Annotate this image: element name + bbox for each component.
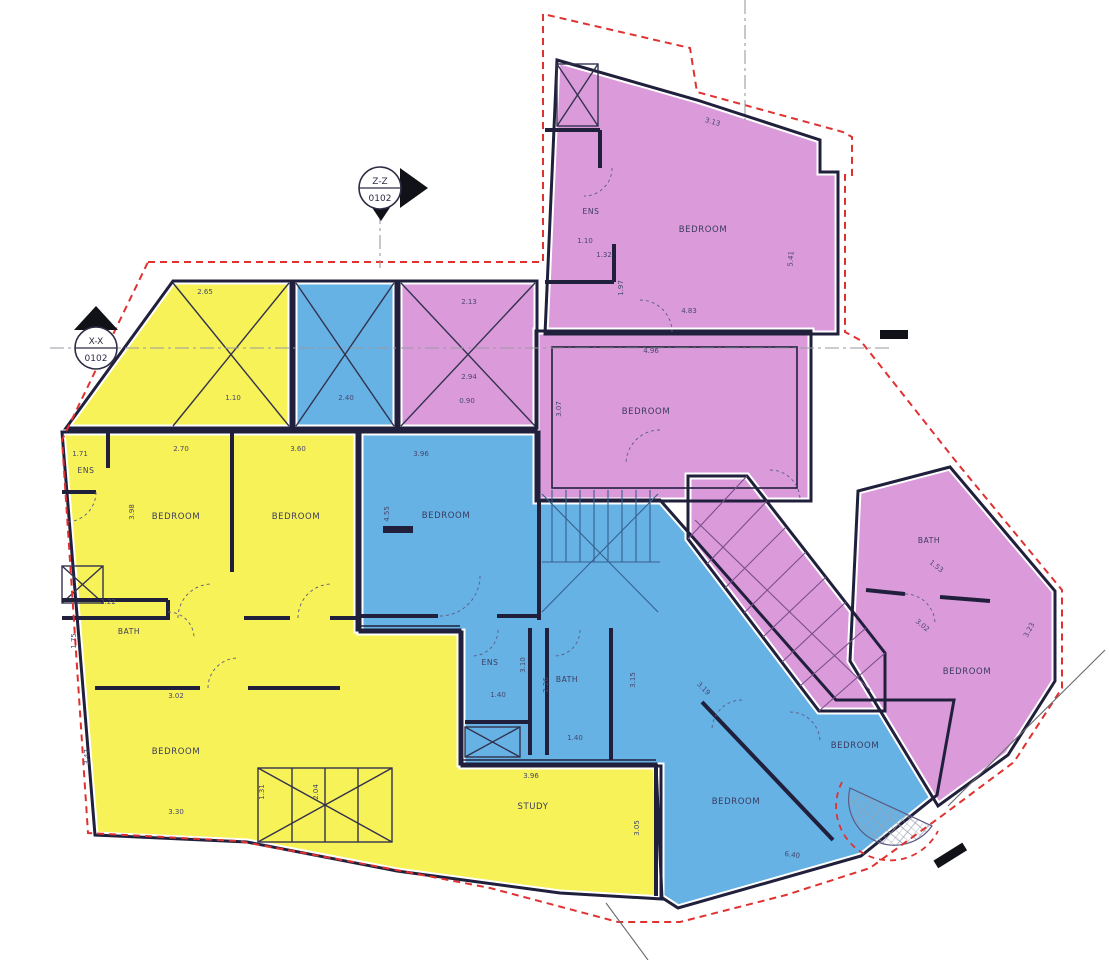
dimension-label: 3.96	[523, 772, 539, 780]
dimension-label: 2.40	[338, 394, 354, 402]
dimension-label: 3.07	[555, 401, 563, 417]
dimension-label: 2.26	[542, 677, 550, 693]
section-marker-xx: X-X 0102	[74, 306, 118, 369]
section-zz-name: Z-Z	[372, 177, 387, 187]
dimension-label: 2.22	[100, 598, 116, 606]
room-label: ENS	[583, 207, 600, 216]
floor-plan-drawing: Z-Z 0102 X-X 0102 ENSBEDROOMBEDROOMBATHB…	[0, 0, 1109, 960]
dimension-label: 1.75	[70, 633, 78, 649]
room-label: BEDROOM	[831, 741, 880, 751]
dimension-label: 1.71	[72, 450, 88, 458]
dimension-label: 3.15	[629, 672, 637, 688]
dimension-label: 3.30	[168, 808, 184, 816]
room-label: BATH	[556, 675, 578, 684]
dimension-label: 3.05	[633, 820, 641, 836]
dimension-label: 1.40	[567, 734, 583, 742]
room-label: BATH	[118, 627, 140, 636]
section-zz-sheet: 0102	[369, 194, 392, 204]
dimension-label: 3.10	[519, 657, 527, 673]
room-label: ENS	[78, 466, 95, 475]
dimension-label: 4.83	[681, 307, 697, 315]
room-label: BEDROOM	[152, 747, 201, 757]
room-label: BEDROOM	[622, 407, 671, 417]
room-label: BEDROOM	[422, 511, 471, 521]
room-label: BEDROOM	[679, 225, 728, 235]
dimension-label: 3.96	[413, 450, 429, 458]
dimension-label: 1.31	[258, 784, 266, 800]
dimension-label: 4.55	[383, 506, 391, 522]
room-label: BEDROOM	[272, 512, 321, 522]
room-label: BEDROOM	[943, 667, 992, 677]
dimension-label: 5.41	[786, 251, 795, 267]
dimension-label: 1.97	[617, 280, 625, 296]
section-xx-sheet: 0102	[85, 354, 108, 364]
dimension-label: 1.40	[490, 691, 506, 699]
dimension-label: 3.98	[128, 504, 136, 520]
dimension-label: 1.10	[577, 237, 593, 245]
section-marker-zz: Z-Z 0102	[359, 167, 428, 221]
section-xx-name: X-X	[89, 337, 104, 347]
dimension-label: 3.02	[168, 692, 184, 700]
dimension-label: 2.65	[197, 288, 213, 296]
dimension-label: 2.70	[173, 445, 189, 453]
dimension-label: 1.32	[596, 251, 612, 259]
dimension-label: 1.10	[225, 394, 241, 402]
wall-stub	[383, 526, 413, 533]
dimension-label: 2.04	[312, 784, 320, 800]
room-label: BATH	[918, 536, 940, 545]
dimension-label: 2.13	[461, 298, 477, 306]
dimension-label: 3.60	[290, 445, 306, 453]
dimension-label: 0.90	[459, 397, 475, 405]
room-label: STUDY	[517, 802, 548, 812]
floor-plan-page: Z-Z 0102 X-X 0102 ENSBEDROOMBEDROOMBATHB…	[0, 0, 1109, 960]
room-label: ENS	[482, 658, 499, 667]
dimension-label: 2.94	[461, 373, 477, 381]
room-label: BEDROOM	[712, 797, 761, 807]
dimension-label: 4.96	[643, 347, 659, 355]
dimension-label: 3.47	[83, 749, 91, 765]
room-label: BEDROOM	[152, 512, 201, 522]
